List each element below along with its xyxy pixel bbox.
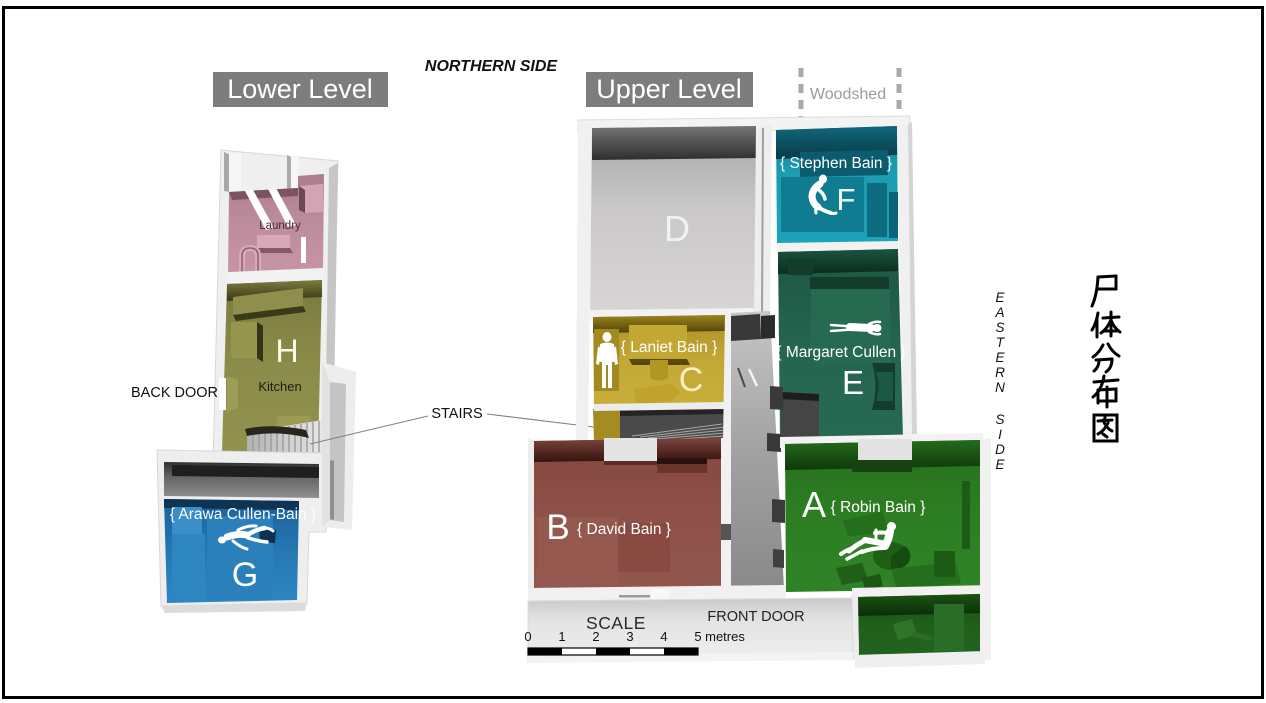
svg-text:{ Laniet Bain }: { Laniet Bain } <box>621 339 718 356</box>
svg-text:BACK DOOR: BACK DOOR <box>131 385 218 401</box>
svg-text:G: G <box>232 556 258 594</box>
svg-text:0: 0 <box>524 629 531 644</box>
svg-text:2: 2 <box>592 629 599 644</box>
svg-text:B: B <box>546 508 569 547</box>
svg-text:C: C <box>679 361 704 399</box>
svg-text:{ Margaret Cullen }: { Margaret Cullen } <box>776 344 905 361</box>
svg-text:{ Stephen Bain }: { Stephen Bain } <box>780 155 892 172</box>
svg-text:D: D <box>664 208 690 249</box>
svg-text:5: 5 <box>694 629 701 644</box>
svg-text:E: E <box>995 290 1005 305</box>
svg-text:FRONT DOOR: FRONT DOOR <box>707 609 804 625</box>
svg-text:Laundry: Laundry <box>259 220 301 232</box>
svg-text:I: I <box>998 427 1002 442</box>
svg-text:{ Robin Bain }: { Robin Bain } <box>831 499 926 516</box>
svg-text:STAIRS: STAIRS <box>431 406 482 422</box>
svg-text:4: 4 <box>660 629 667 644</box>
svg-text:A: A <box>802 484 826 525</box>
svg-text:F: F <box>837 182 856 217</box>
svg-text:NORTHERN SIDE: NORTHERN SIDE <box>425 58 558 75</box>
svg-text:Upper Level: Upper Level <box>596 74 742 104</box>
svg-text:metres: metres <box>705 629 745 644</box>
svg-text:Woodshed: Woodshed <box>810 86 886 103</box>
svg-text:N: N <box>995 380 1005 395</box>
svg-text:{ David Bain }: { David Bain } <box>577 521 671 538</box>
svg-text:Kitchen: Kitchen <box>258 379 301 394</box>
svg-text:A: A <box>994 305 1004 320</box>
svg-text:{ Arawa Cullen-Bain }: { Arawa Cullen-Bain } <box>170 506 316 523</box>
svg-text:S: S <box>995 320 1004 335</box>
svg-text:E: E <box>995 350 1005 365</box>
svg-text:H: H <box>275 333 298 369</box>
svg-text:T: T <box>996 335 1006 350</box>
svg-text:1: 1 <box>558 629 565 644</box>
svg-text:3: 3 <box>626 629 633 644</box>
svg-text:R: R <box>995 365 1005 380</box>
svg-text:D: D <box>995 442 1005 457</box>
svg-text:Lower Level: Lower Level <box>227 74 373 104</box>
svg-text:E: E <box>842 364 864 401</box>
svg-text:E: E <box>995 457 1005 472</box>
svg-text:S: S <box>995 412 1004 427</box>
